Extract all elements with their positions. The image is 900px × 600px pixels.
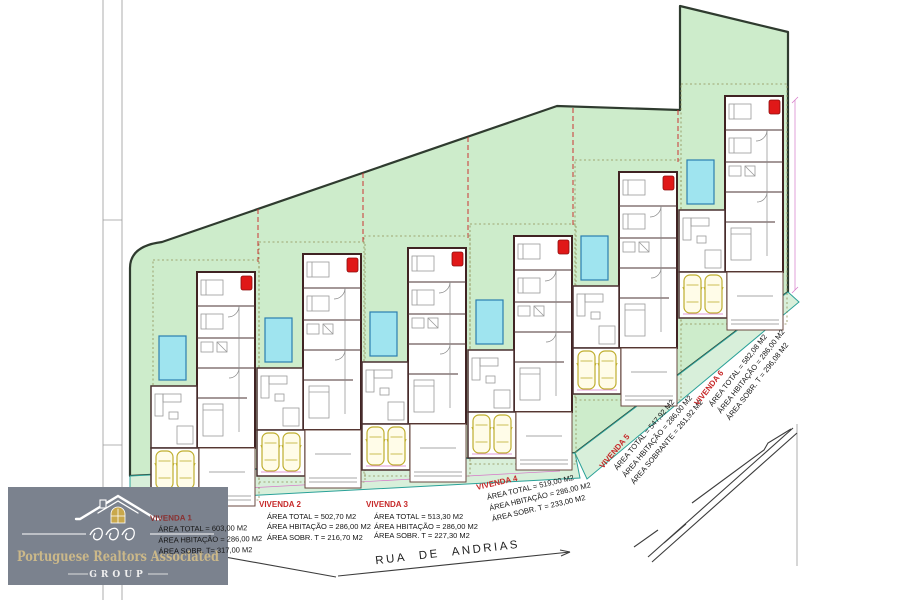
dimension-line-right — [792, 97, 798, 293]
villa-2-title: VIVENDA 2 — [259, 500, 301, 509]
villa-3-title: VIVENDA 3 — [366, 500, 408, 509]
site-plan-drawing: 26.88 RUA DE ANDRIAS — [0, 0, 900, 600]
svg-text:ÁREA TOTAL = 603,00 M2: ÁREA TOTAL = 603,00 M2 — [158, 523, 247, 534]
svg-text:ÁREA SOBR. T = 216,70 M2: ÁREA SOBR. T = 216,70 M2 — [267, 533, 363, 542]
villa-2-label: VIVENDA 2 ÁREA TOTAL = 502,70 M2 ÁREA HB… — [259, 500, 371, 542]
site-plan-canvas: 26.88 RUA DE ANDRIAS — [0, 0, 900, 600]
svg-text:ÁREA TOTAL = 502,70 M2: ÁREA TOTAL = 502,70 M2 — [267, 512, 356, 521]
svg-text:ÁREA SOBR. T= 317,00 M2: ÁREA SOBR. T= 317,00 M2 — [158, 545, 252, 556]
svg-text:ÁREA HBITAÇÃO = 286,00 M2: ÁREA HBITAÇÃO = 286,00 M2 — [374, 522, 478, 531]
svg-text:ÁREA HBITAÇÃO = 286,00 M2: ÁREA HBITAÇÃO = 286,00 M2 — [267, 522, 371, 531]
svg-text:ÁREA HBITAÇÃO = 286,00 M2: ÁREA HBITAÇÃO = 286,00 M2 — [158, 534, 262, 545]
villa-1-title: VIVENDA 1 — [150, 513, 193, 523]
villa-3-label: VIVENDA 3 ÁREA TOTAL = 513,30 M2 ÁREA HB… — [366, 500, 478, 540]
logo-group: GROUP — [89, 570, 147, 580]
street-label: RUA DE ANDRIAS — [375, 539, 521, 567]
svg-text:ÁREA TOTAL = 513,30 M2: ÁREA TOTAL = 513,30 M2 — [374, 512, 463, 521]
svg-text:ÁREA SOBR. T = 227,30 M2: ÁREA SOBR. T = 227,30 M2 — [374, 531, 470, 540]
